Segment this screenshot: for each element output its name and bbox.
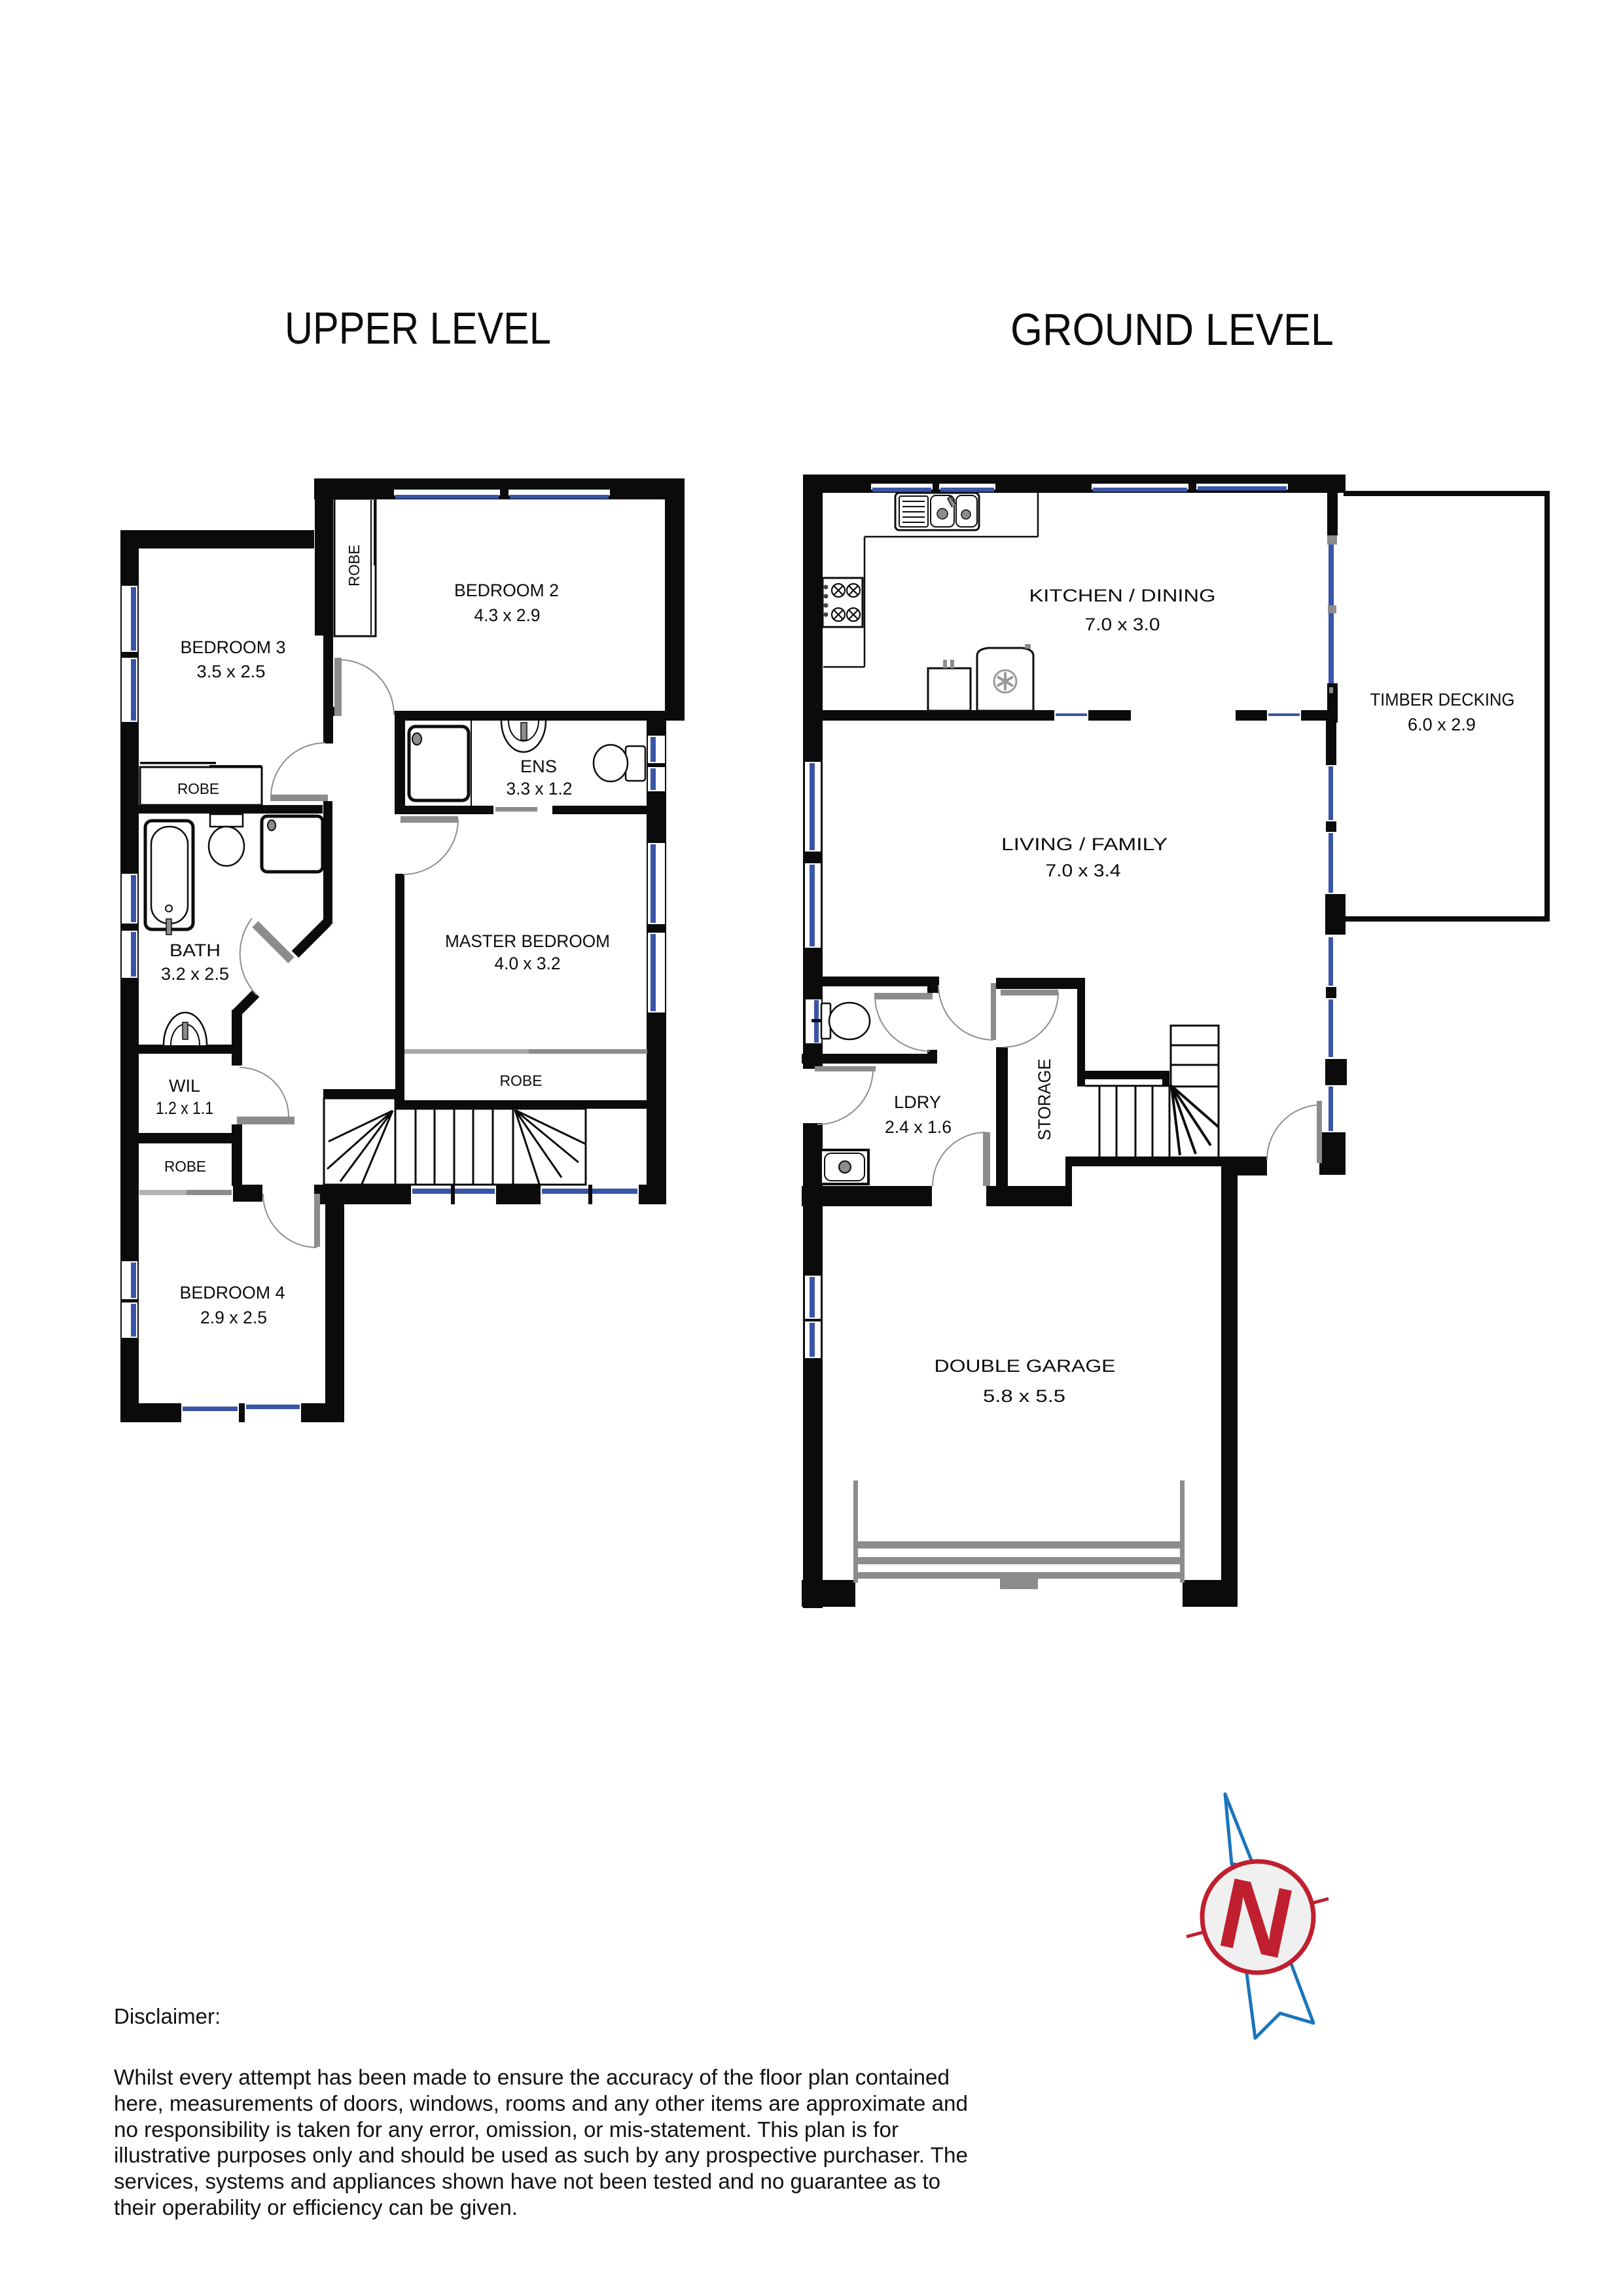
svg-text:ROBE: ROBE [500,1072,543,1089]
svg-text:5.8 x 5.5: 5.8 x 5.5 [983,1386,1065,1406]
svg-text:ROBE: ROBE [177,780,219,797]
svg-text:WIL: WIL [169,1076,200,1096]
svg-text:3.5 x 2.5: 3.5 x 2.5 [197,662,266,681]
svg-text:ENS: ENS [520,757,557,776]
svg-text:UPPER LEVEL: UPPER LEVEL [285,303,551,353]
svg-text:their operability or efficienc: their operability or efficiency can be g… [114,2195,518,2219]
svg-text:4.0 x 3.2: 4.0 x 3.2 [495,954,561,973]
svg-text:3.3 x 1.2: 3.3 x 1.2 [507,779,573,798]
svg-text:6.0 x 2.9: 6.0 x 2.9 [1408,715,1476,734]
svg-text:1.2 x 1.1: 1.2 x 1.1 [156,1098,213,1118]
svg-text:LDRY: LDRY [894,1092,941,1112]
svg-text:4.3 x 2.9: 4.3 x 2.9 [474,605,541,625]
svg-text:BEDROOM 2: BEDROOM 2 [454,581,559,600]
svg-text:DOUBLE GARAGE: DOUBLE GARAGE [935,1356,1116,1376]
svg-text:ROBE: ROBE [164,1158,206,1175]
svg-text:2.4 x 1.6: 2.4 x 1.6 [885,1117,952,1137]
svg-text:LIVING / FAMILY: LIVING / FAMILY [1001,834,1168,854]
svg-text:BEDROOM 4: BEDROOM 4 [180,1283,285,1302]
svg-text:3.2 x 2.5: 3.2 x 2.5 [161,964,229,984]
svg-text:no responsibility is taken for: no responsibility is taken for any error… [114,2117,899,2142]
svg-text:STORAGE: STORAGE [1035,1059,1054,1141]
svg-text:services, systems and applianc: services, systems and appliances shown h… [114,2169,940,2193]
svg-text:2.9 x 2.5: 2.9 x 2.5 [200,1308,267,1327]
svg-text:TIMBER DECKING: TIMBER DECKING [1370,690,1515,709]
svg-text:MASTER BEDROOM: MASTER BEDROOM [445,931,610,951]
svg-text:BATH: BATH [169,941,221,960]
svg-text:here, measurements of doors, w: here, measurements of doors, windows, ro… [114,2091,968,2115]
svg-text:illustrative purposes only and: illustrative purposes only and should be… [114,2143,968,2167]
svg-text:7.0 x 3.0: 7.0 x 3.0 [1085,615,1160,634]
svg-text:7.0 x 3.4: 7.0 x 3.4 [1046,861,1121,880]
svg-text:BEDROOM 3: BEDROOM 3 [181,637,286,657]
svg-text:GROUND LEVEL: GROUND LEVEL [1010,304,1334,355]
svg-text:Disclaimer:: Disclaimer: [114,2004,221,2028]
svg-text:Whilst every attempt has been: Whilst every attempt has been made to en… [114,2065,950,2089]
svg-text:ROBE: ROBE [346,545,363,586]
svg-text:KITCHEN / DINING: KITCHEN / DINING [1029,586,1216,605]
